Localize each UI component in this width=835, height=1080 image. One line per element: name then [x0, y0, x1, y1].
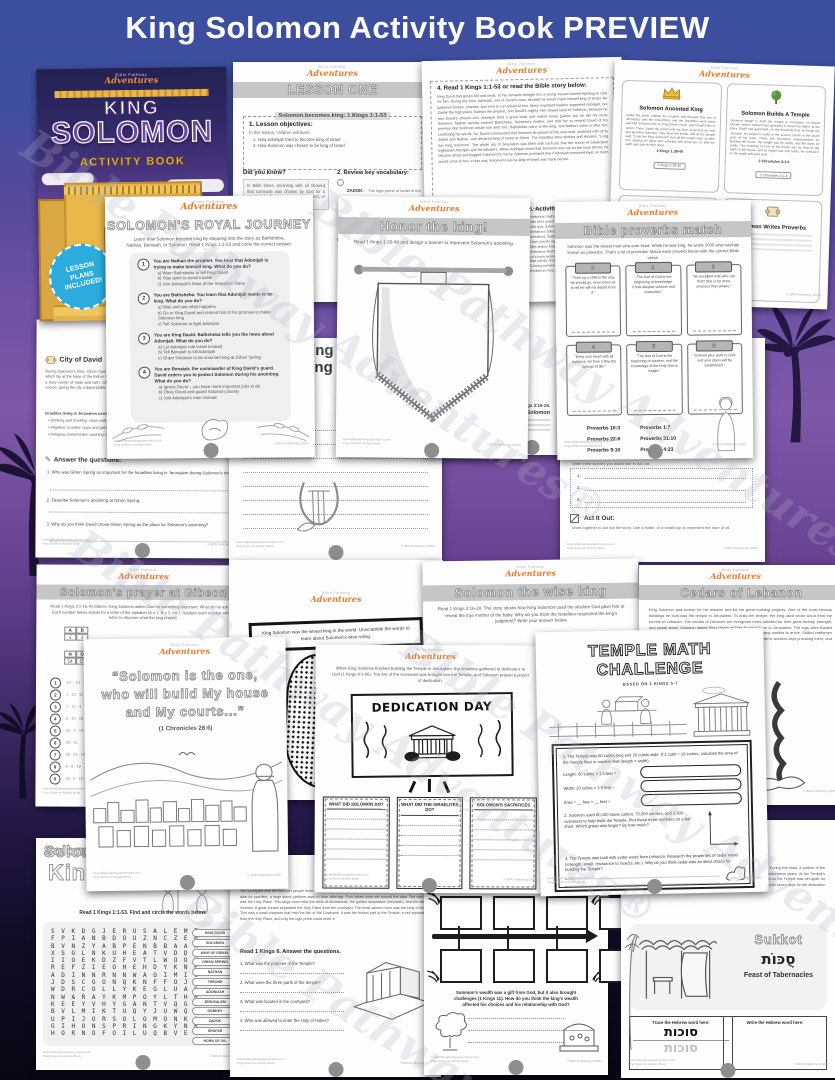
- tree-sketch-illustration: [432, 1010, 468, 1054]
- bpa-logo: Bible PathwayAdventures: [233, 66, 432, 77]
- grid-row: N W A R A Y K M P O Y L T H H: [51, 994, 199, 1001]
- answer-option: Proverbs 16:3: [587, 423, 620, 434]
- writing-line: [468, 1018, 564, 1019]
- bpa-logo-script: Adventures: [229, 595, 443, 603]
- writing-line: [400, 816, 459, 826]
- answer-line: [633, 331, 676, 332]
- page-footer-left: www.biblepathwayadventures.comKing Solom…: [114, 438, 162, 447]
- gibeon-title: Solomon's prayer at Gibeon: [60, 586, 227, 599]
- question-option: c) Join Adonijah's feast at the Serpent'…: [158, 281, 282, 288]
- word-search-grid: S V K D G J E R U S A L E M T F P I A N …: [51, 928, 199, 1037]
- smoke-squiggle-icon: [379, 724, 389, 764]
- page-footer-left: www.biblepathwayadventures.comKing Solom…: [431, 1055, 478, 1063]
- proverb-text: "Train up a child in the way he should g…: [569, 275, 617, 296]
- page-footer-right: © BPA Publishing (2025): [401, 544, 435, 548]
- page-number-badge: [422, 878, 437, 893]
- writing-line: [474, 831, 533, 841]
- ark-procession-illustration: [542, 686, 759, 743]
- writing-line: [243, 472, 428, 473]
- proverb-number: 3: [712, 264, 716, 270]
- page-footer-right: © BPA Publishing (2025): [712, 442, 746, 446]
- bpa-logo-script: Adventures: [37, 571, 251, 580]
- grid-row: B V N Z Y A B P E N B B A A R: [51, 943, 199, 950]
- page-number-badge: [721, 1063, 736, 1078]
- temple-body: The courtyard was the first part people …: [240, 889, 431, 922]
- decode-sequence: 20 - 15: [66, 741, 78, 745]
- temple-questions-heading: Read 1 Kings 6. Answer the questions.: [240, 949, 341, 955]
- crown-icon: [661, 86, 681, 100]
- page-footer-left: www.biblepathwayadventures.comKing Solom…: [564, 439, 612, 448]
- page-footer-left: www.biblepathwayadventures.comKing Solom…: [43, 1050, 90, 1058]
- decode-number: 2: [50, 689, 61, 700]
- decode-sequence: 8 - 9 - 19: [66, 765, 81, 769]
- writing-line: [400, 826, 459, 836]
- math-row-label: Length: 60 cubits × 1.5 feet =: [563, 770, 635, 777]
- question-number: 4: [138, 367, 150, 379]
- bpa-logo-script: Adventures: [105, 202, 313, 213]
- cipher-letter: N: [64, 651, 76, 658]
- proverbs-title: Bible proverbs match: [584, 222, 723, 237]
- proverb-number: 6: [713, 343, 717, 349]
- bpa-logo-script: Adventures: [422, 567, 638, 578]
- proverb-card-tab: 5: [636, 341, 673, 352]
- page-footer-right: © BPA Publishing (2025): [567, 1059, 601, 1063]
- trace-word-solid: סוכות: [633, 1025, 729, 1041]
- proverb-number: 4: [592, 344, 596, 350]
- math-question-1: 1. The Temple was 60 cubits long and 20 …: [563, 750, 741, 765]
- pencil-icon: ✎: [45, 455, 51, 463]
- lyre-icon: [295, 476, 343, 534]
- page-number-badge: [204, 443, 219, 458]
- dedication-box-header: WHAT DID THE ISRAELITES DO?: [400, 802, 459, 816]
- cover-brand: Bible Pathway Adventures: [36, 72, 226, 87]
- question-option: c) Join Adonijah's men instead: [159, 395, 283, 402]
- page-footer-right: © BPA Publishing (2025): [803, 789, 835, 793]
- timeline-boxes-top: [440, 896, 641, 930]
- answer-line: [50, 506, 238, 514]
- footer-book: King Solomon Activity Book: [564, 443, 612, 448]
- answer-line: [240, 1004, 344, 1012]
- gibeon-intro: Read 1 Kings 3:1-15. At Gibeon, King Sol…: [48, 604, 238, 622]
- temple-question-4: 4. Who was allowed to enter the Holy of …: [240, 1018, 344, 1023]
- bpa-logo: Bible PathwayAdventures: [105, 199, 313, 213]
- page-footer-left: www.biblepathwayadventures.comKing Solom…: [343, 437, 391, 446]
- scroll-icon: [45, 355, 56, 364]
- script-line-number: 3.: [577, 497, 581, 503]
- grid-row: J D S C G O N Q K N F F O J H: [51, 979, 199, 986]
- decode-number: 6: [50, 737, 61, 748]
- city-heading: City of David: [59, 357, 102, 364]
- footer-book: King Solomon Activity Book: [236, 544, 283, 548]
- journey-question: 1 You are Nathan the prophet. You hear t…: [137, 257, 281, 287]
- journey-question: 4 You are Benaiah, the commander of King…: [138, 365, 282, 401]
- page-footer-right: © BPA Publishing (2025): [504, 877, 538, 881]
- question-number: 2: [138, 293, 150, 305]
- decode-number: 9: [49, 773, 60, 784]
- city-question-1: 1. Why was Gihon Spring so important for…: [47, 469, 238, 476]
- math-question-2: 2. Solomon used 80,000 stone cutters, 70…: [564, 810, 693, 853]
- writing-line: [474, 841, 533, 851]
- bpa-logo-script: Adventures: [233, 69, 432, 77]
- writing-line: [585, 473, 746, 479]
- bpa-logo: Bible PathwayAdventures: [422, 61, 622, 76]
- writing-line: [327, 840, 386, 850]
- answer-oval: [641, 792, 742, 806]
- sukkot-subtitle: Feast of Tabernacles: [744, 972, 813, 979]
- proverb-text: "The fear of God is the beginning of wis…: [631, 354, 679, 375]
- dedication-banner: DEDICATION DAY: [353, 699, 511, 715]
- honor-king-subtitle: Read 1 Kings 1:32-48 and design a banner…: [346, 239, 522, 246]
- cipher-letter: B: [76, 627, 88, 634]
- answer-oval: [640, 764, 741, 778]
- footer-book: King Solomon Activity Book: [93, 874, 141, 879]
- proverb-card-tab: 2: [635, 262, 672, 273]
- dedication-box-header: WHAT DID SOLOMON DO?: [327, 801, 386, 810]
- story-card-anointed: Solomon Anointed King Zadok the priest, …: [619, 80, 722, 193]
- page-footer-right: © BPA Publishing (2025): [247, 873, 281, 877]
- page-number-badge: [509, 1060, 524, 1075]
- bpa-logo: Bible PathwayAdventures: [338, 200, 530, 213]
- proverb-card-tab: 6: [696, 340, 733, 351]
- timeline-box: [493, 896, 535, 930]
- page-number-badge: [328, 545, 343, 560]
- city-question-3: 3. Why do you think David chose Gihon Sp…: [47, 521, 238, 528]
- bpa-logo-script: Adventures: [555, 207, 751, 217]
- temple-cutaway-illustration: [350, 959, 434, 1025]
- journey-question: 2 You are Bathsheba. You learn that Adon…: [138, 291, 282, 327]
- page-number-badge: [328, 1062, 343, 1077]
- timeline-box: [546, 949, 588, 983]
- city-illustration: [90, 739, 283, 859]
- answer-line: [633, 410, 676, 411]
- objectives-title: 1. Lesson objectives:: [249, 121, 416, 128]
- dedication-box: SOLOMON'S SACRIFICES: [470, 797, 537, 889]
- decode-number: 3: [50, 701, 61, 712]
- writing-line: [327, 850, 386, 860]
- answer-line: [693, 330, 736, 331]
- bible-story-body: King David had grown old and weak, so hi…: [437, 91, 608, 165]
- script-write-sub: Write three scenes you would like to act…: [572, 461, 650, 466]
- smoke-squiggle-icon: [493, 718, 504, 762]
- quote-line-3: and My courts...”: [84, 703, 286, 720]
- page-footer-right: © BPA Publishing (2025): [794, 1062, 828, 1066]
- story-card-temple: Solomon Builds A Temple Solomon began to…: [723, 83, 826, 196]
- city-question-2: 2. Describe Solomon's anointing at Gihon…: [47, 497, 238, 503]
- grid-row: W D R C O L L Y K E G L U A S: [51, 986, 199, 993]
- smoke-squiggle-icon: [475, 722, 485, 762]
- bpa-logo-script: Adventures: [36, 76, 226, 87]
- answer-line: [240, 985, 344, 993]
- cipher-number: 14: [64, 658, 76, 665]
- cover-subtitle-activity-book: ACTIVITY BOOK: [37, 155, 227, 170]
- cover-title-solomon: SOLOMON: [37, 115, 227, 152]
- script-act-text: Work together to act out the story. Use …: [572, 525, 751, 531]
- page-footer-right: © BPA Publishing (2025): [274, 441, 308, 445]
- page-proverbs-match: Bible PathwayAdventures Bible proverbs m…: [555, 200, 754, 460]
- bpa-logo: Bible PathwayAdventures: [37, 568, 251, 580]
- page-footer-left: www.biblepathwayadventures.comKing Solom…: [42, 537, 90, 546]
- footer-book: King Solomon Activity Book: [431, 1059, 478, 1063]
- bpa-logo-script: Adventures: [84, 645, 286, 655]
- footer-book: King Solomon Activity Book: [42, 541, 89, 545]
- page-honor-the-king: Bible PathwayAdventures Honor the king! …: [336, 196, 531, 459]
- footer-book: King Solomon Activity Book: [43, 1054, 90, 1058]
- royal-journey-title: SOLOMON'S ROYAL JOURNEY: [105, 217, 313, 233]
- writing-line: [243, 458, 428, 459]
- answer-option: Proverbs 31:10: [640, 434, 676, 445]
- page-number-badge: [648, 444, 663, 459]
- bpa-logo: Bible PathwayAdventures: [84, 643, 286, 656]
- grid-row: H O R N O F O I L U Q B V E W: [51, 1030, 199, 1037]
- proverb-card: 3"An excellent wife who can find? She is…: [686, 264, 742, 336]
- writing-line: [327, 830, 386, 840]
- footer-book: King Solomon Activity Book: [114, 442, 162, 447]
- bpa-logo: Bible PathwayAdventures: [555, 204, 751, 217]
- proverb-number: 1: [591, 265, 595, 271]
- timeline-arrow-head: [586, 929, 598, 943]
- proverb-number: 5: [652, 343, 656, 349]
- page-number-badge: [424, 443, 439, 458]
- grid-row: I I O E K D Z F V T L W O O N: [51, 957, 199, 964]
- wise-king-intro: Read 1 Kings 3:16-28. The story shows ho…: [437, 604, 625, 626]
- decode-sequence: 7 - 15 - 4: [66, 705, 81, 709]
- decode-number: 8: [50, 761, 61, 772]
- page-temple-math: TEMPLE MATH CHALLENGE BASED ON 1 KINGS 5…: [535, 628, 768, 897]
- timeline-boxes-bottom: [440, 949, 641, 983]
- proverb-text: "Commit your work to God, and your plans…: [691, 353, 738, 369]
- grid-row: K E E Y V H Y G A N T V Q G O: [51, 1001, 199, 1008]
- writing-line: [474, 811, 533, 821]
- bpa-logo: Bible PathwayAdventures: [316, 648, 546, 660]
- cedars-title: Cedars of Lebanon: [680, 586, 802, 600]
- bpa-logo: Bible PathwayAdventures: [422, 565, 638, 579]
- temple-icon: [404, 723, 460, 764]
- page-footer-left: www.biblepathwayadventures.comKing Solom…: [547, 875, 595, 884]
- footer-book: King Solomon Activity Book: [321, 876, 368, 880]
- writing-line: [400, 846, 459, 856]
- throne-sketch-illustration: [556, 1006, 602, 1054]
- answer-line: [50, 484, 238, 492]
- writing-line: [585, 497, 746, 503]
- grid-row: X S G L N K U H E A T V D D O: [51, 950, 199, 957]
- write-label: Write the Hebrew word here:: [727, 1020, 823, 1025]
- page-number-badge: [647, 879, 662, 894]
- sukkot-title: Sukkot: [744, 932, 813, 947]
- banner-illustration: [346, 250, 520, 446]
- decode-sequence: 6 - 15 - 18: [66, 717, 83, 721]
- writing-line: [327, 820, 386, 830]
- word-search-instruction: Read 1 Kings 1:1-53. Find and circle the…: [36, 910, 250, 916]
- timeline-box: [440, 949, 482, 983]
- answer-option: Proverbs 1:7: [640, 423, 676, 434]
- cipher-letter: A: [64, 627, 76, 634]
- bar-chart-axes-icon: [701, 809, 743, 850]
- grid-row: F P I A N B D O U Z N C Z E H: [51, 935, 199, 942]
- main-title: King Solomon Activity Book PREVIEW: [0, 10, 835, 46]
- scroll-icon: [765, 205, 780, 217]
- honor-king-title: Honor the king!: [380, 218, 488, 234]
- clapperboard-icon: [570, 514, 579, 523]
- card-reference-tag: 2 Chronicles 3:1-4: [756, 171, 792, 179]
- dedication-box-header: SOLOMON'S SACRIFICES: [474, 802, 533, 811]
- grid-row: A D I N N R N N W A O I M I C: [51, 972, 199, 979]
- bpa-logo: Bible PathwayAdventures: [614, 64, 834, 81]
- math-row-label: Area = __ feet × __ feet =: [564, 798, 636, 805]
- writing-line: [468, 1030, 564, 1031]
- trace-word-ghost: סוכות: [633, 1041, 729, 1056]
- timeline-box: [546, 896, 588, 930]
- page-number-badge: [180, 875, 195, 890]
- page-footer-left: www.biblepathwayadventures.comKing Solom…: [628, 1058, 675, 1066]
- decode-number: 7: [50, 749, 61, 760]
- proverb-card: 2"The fear of God is the beginning of kn…: [626, 265, 682, 337]
- royal-journey-intro: Learn how Solomon became king by steppin…: [125, 235, 293, 249]
- proverbs-intro: Solomon was the wisest man who ever live…: [567, 242, 739, 261]
- page-footer-left: www.biblepathwayadventures.comKing Solom…: [321, 872, 369, 881]
- proverb-card: 4"Keep your heart with all vigilance, fo…: [566, 344, 622, 416]
- dedication-box: WHAT DID THE ISRAELITES DO?: [396, 797, 463, 889]
- answer-line: [240, 1023, 344, 1031]
- writing-line: [585, 485, 746, 491]
- page-number-badge: [134, 543, 149, 558]
- bpa-logo: Bible PathwayAdventures: [229, 592, 443, 603]
- quote-reference: (1 Chronicles 28:6): [85, 725, 287, 733]
- script-act-title: Act It Out:: [584, 515, 614, 522]
- card-text: Solomon began to build the temple in Jer…: [729, 118, 820, 158]
- sukkot-hebrew: סֻכּוֹת: [744, 950, 813, 968]
- palm-sketch-illustration: [621, 910, 641, 1050]
- bpa-logo-script: Adventures: [614, 66, 834, 81]
- vocab-bullet-icon: [337, 179, 344, 186]
- card-text: Zadok the priest, Nathan the prophet, an…: [625, 113, 716, 149]
- grid-row: R E F Z I E O H E H D Y K N E: [51, 964, 199, 971]
- grid-row: S V K D G J E R U S A L E M T: [51, 928, 199, 935]
- page-footer-left: www.biblepathwayadventures.comKing Solom…: [237, 1057, 284, 1065]
- proverb-card-tab: 1: [575, 262, 612, 273]
- proverb-text: "Keep your heart with all vigilance, for…: [570, 354, 617, 370]
- proverb-card-tab: 3: [695, 261, 732, 272]
- quote-line-1: “Solomon is the one,: [84, 667, 286, 684]
- question-number: 3: [138, 332, 150, 344]
- card-ref: 2 Chronicles 3:1-4: [729, 158, 819, 165]
- decode-number: 4: [50, 713, 61, 724]
- wise-king-title: Solomon the wise king: [455, 584, 607, 600]
- temple-math-title-line2: CHALLENGE: [536, 659, 764, 682]
- page-royal-journey: Bible PathwayAdventures SOLOMON'S ROYAL …: [105, 195, 315, 459]
- page-number-badge: [136, 1055, 151, 1070]
- sukkah-illustration: [637, 930, 719, 1004]
- proverb-text: "An excellent wife who can find? She is …: [690, 274, 737, 290]
- slash-mark: [428, 779, 431, 792]
- card-reference-tag: 1 Kings 1:38-40: [653, 162, 685, 170]
- answer-oval: [640, 778, 741, 792]
- timeline-box: [493, 949, 535, 983]
- royal-journey-panel: 1 You are Nathan the prophet. You hear t…: [129, 251, 290, 422]
- writing-line: [468, 1042, 564, 1043]
- math-row-label: Width: 20 cubits × 1.5 feet =: [563, 784, 635, 791]
- footer-book: King Solomon Activity Book: [42, 790, 89, 794]
- page-footer-right: © BPA Publishing (2025): [487, 443, 521, 447]
- footer-book: King Solomon Activity Book: [628, 1062, 675, 1066]
- writing-line: [327, 810, 386, 820]
- page-footer-left: www.biblepathwayadventures.comKing Solom…: [93, 870, 141, 879]
- decode-number: 5: [50, 725, 61, 736]
- grid-row: U P I J O R S O L O M O N K A: [51, 1016, 199, 1023]
- answer-line: [573, 410, 616, 411]
- journey-question: 3 You are King David. Bathsheba tells yo…: [138, 331, 282, 361]
- footer-book: King Solomon Activity Book: [343, 441, 391, 446]
- page-footer-left: www.biblepathwayadventures.comKing Solom…: [42, 786, 90, 795]
- slash-mark: [409, 781, 417, 793]
- decode-number: 1: [50, 677, 61, 688]
- dedication-card: DEDICATION DAY: [351, 692, 514, 778]
- preview-canvas: King Solomon Activity Book PREVIEW Bible…: [0, 0, 835, 1080]
- word-search-panel: S V K D G J E R U S A L E M T F P I A N …: [43, 922, 243, 1046]
- temple-math-problem-box: 1. The Temple was 60 cubits long and 20 …: [552, 740, 755, 892]
- page-footer-left: www.biblepathwayadventures.comKing Solom…: [236, 540, 283, 548]
- writing-line: [474, 821, 533, 831]
- timeline-box: [440, 896, 482, 930]
- bible-story-heading: 4. Read 1 Kings 1:1-53 or read the Bible…: [437, 82, 607, 92]
- smoke-squiggle-icon: [361, 720, 372, 764]
- proverb-text: "The fear of God is the beginning of kno…: [630, 275, 678, 296]
- answer-line: [240, 966, 344, 974]
- slash-mark: [443, 781, 451, 793]
- card-ref: 1 Kings 1:38-40: [625, 148, 715, 155]
- bpa-logo: Bible PathwayAdventures: [639, 569, 832, 580]
- vocab-word-1: ZADOK:: [347, 188, 364, 193]
- proverb-card: 1"Train up a child in the way he should …: [565, 265, 621, 337]
- bpa-logo-script: Adventures: [639, 572, 832, 580]
- footer-book: King Solomon Activity Book: [237, 1061, 284, 1065]
- bpa-logo-script: Adventures: [316, 651, 546, 660]
- didyouknow-title: Did you know?: [243, 170, 329, 176]
- script-line-number: 1.: [577, 473, 581, 479]
- quote-line-2: who will build My house: [84, 685, 286, 702]
- answer-line: [572, 331, 615, 332]
- grid-row: B V L M I K T U Q Y J U W Q F: [51, 1008, 199, 1015]
- cipher-number: 1: [64, 634, 76, 641]
- lesson-one-title: LESSON ONE: [288, 83, 378, 97]
- page-footer-left: www.biblepathwayadventures.comKing Solom…: [567, 542, 614, 550]
- question-number: 1: [137, 259, 149, 271]
- script-line-number: 2.: [577, 485, 581, 491]
- page-footer-right: © BPA Publishing (2025): [728, 876, 762, 881]
- grid-row: G I H O N S P R I N G K Y N R: [51, 1023, 199, 1030]
- proverb-number: 2: [651, 264, 655, 270]
- objectives-intro: In this lesson, children will learn:: [249, 130, 416, 135]
- tree-icon: [769, 89, 782, 104]
- writing-line: [474, 851, 533, 861]
- page-footer-right: © BPA Publishing (2025): [724, 546, 758, 550]
- sukkot-panel: Sukkot סֻכּוֹת Feast of Tabernacles: [629, 924, 827, 1010]
- question-option: c) Tell Solomon to fight Adonijah: [158, 321, 282, 328]
- dedication-intro: When King Solomon finished building the …: [331, 665, 529, 684]
- proverb-card: 5"The fear of God is the beginning of wi…: [626, 344, 682, 416]
- objective-2: 2. How Solomon was chosen to be king of …: [253, 143, 416, 148]
- writing-line: [400, 836, 459, 846]
- bpa-logo-script: Adventures: [338, 203, 530, 213]
- cover-badge-label: LESSON PLANS INCLUDED!: [56, 259, 109, 295]
- question-text: You are Benaiah, the commander of King D…: [154, 365, 282, 384]
- objective-1: 1. How Adonijah tried to become king of …: [253, 137, 416, 142]
- page-build-quote-coloring: Bible PathwayAdventures “Solomon is the …: [83, 637, 288, 891]
- footer-book: King Solomon Activity Book: [567, 546, 614, 550]
- page-dedication-day: Bible PathwayAdventures When King Solomo…: [314, 644, 545, 893]
- timeline-connectors: [458, 939, 578, 949]
- vocab-title: 2. Review key vocabulary:: [337, 170, 423, 176]
- proverb-card-tab: 4: [575, 341, 612, 352]
